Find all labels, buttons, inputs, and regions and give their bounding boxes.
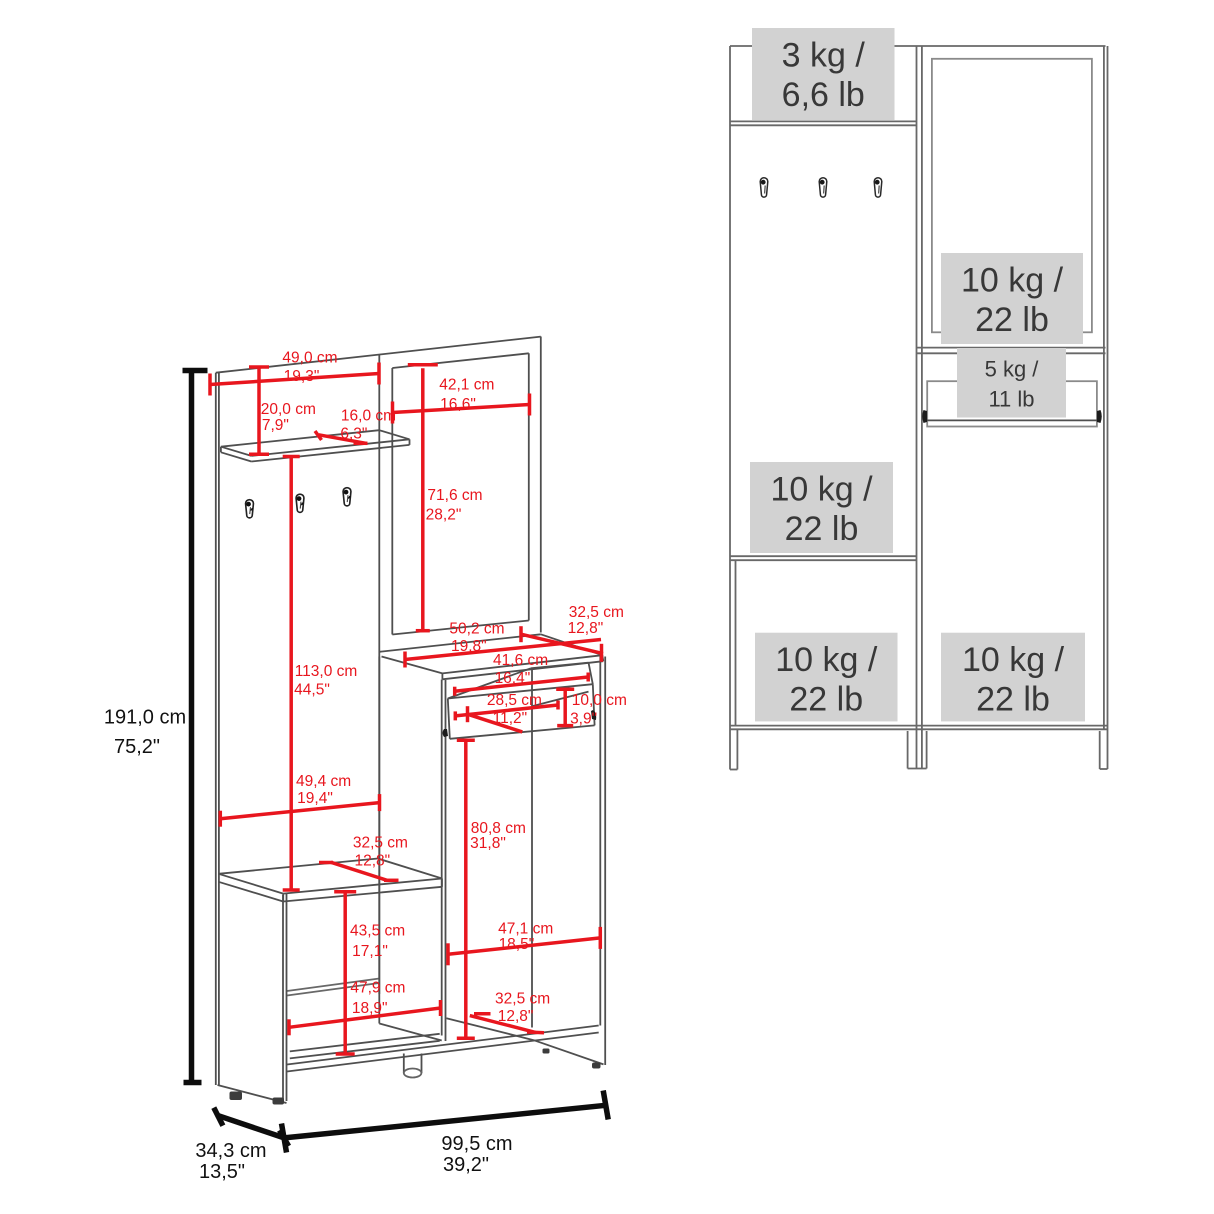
svg-text:191,0 cm: 191,0 cm	[104, 707, 186, 729]
svg-text:47,9 cm: 47,9 cm	[350, 979, 405, 996]
svg-text:19,3": 19,3"	[284, 368, 320, 385]
svg-text:5 kg /: 5 kg /	[985, 357, 1040, 382]
svg-text:42,1 cm: 42,1 cm	[439, 377, 494, 394]
svg-text:16,0 cm: 16,0 cm	[341, 408, 396, 425]
svg-text:28,5 cm: 28,5 cm	[487, 692, 542, 709]
svg-text:28,2": 28,2"	[426, 507, 462, 524]
svg-text:3,9": 3,9"	[570, 710, 597, 727]
svg-text:10,0 cm: 10,0 cm	[572, 692, 627, 709]
svg-text:12,8": 12,8"	[568, 620, 604, 637]
svg-text:22 lb: 22 lb	[976, 681, 1050, 719]
svg-text:12,8": 12,8"	[498, 1008, 534, 1025]
svg-text:10 kg /: 10 kg /	[770, 471, 873, 509]
svg-text:44,5": 44,5"	[294, 681, 330, 698]
svg-text:22 lb: 22 lb	[789, 681, 863, 719]
svg-text:17,1": 17,1"	[352, 943, 388, 960]
svg-text:19,8": 19,8"	[451, 638, 487, 655]
svg-text:41,6 cm: 41,6 cm	[493, 652, 548, 669]
svg-text:18,9": 18,9"	[352, 1000, 388, 1017]
svg-text:99,5 cm: 99,5 cm	[441, 1133, 512, 1155]
svg-text:16,6": 16,6"	[440, 396, 476, 413]
svg-text:32,5 cm: 32,5 cm	[353, 834, 408, 851]
svg-text:113,0 cm: 113,0 cm	[295, 663, 358, 680]
svg-text:19,4": 19,4"	[297, 790, 333, 807]
svg-text:20,0 cm: 20,0 cm	[261, 401, 316, 418]
svg-text:11 lb: 11 lb	[988, 387, 1034, 412]
svg-text:49,0 cm: 49,0 cm	[282, 350, 337, 367]
svg-text:22 lb: 22 lb	[785, 510, 859, 548]
svg-text:6,3": 6,3"	[340, 425, 367, 442]
svg-text:32,5 cm: 32,5 cm	[569, 604, 624, 621]
svg-text:39,2": 39,2"	[443, 1154, 489, 1176]
svg-text:71,6 cm: 71,6 cm	[427, 487, 482, 504]
svg-text:10 kg /: 10 kg /	[775, 641, 878, 679]
svg-text:22 lb: 22 lb	[975, 301, 1049, 339]
svg-text:3 kg /: 3 kg /	[782, 37, 866, 75]
svg-text:10 kg /: 10 kg /	[961, 262, 1064, 300]
svg-text:31,8": 31,8"	[470, 835, 506, 852]
svg-text:34,3 cm: 34,3 cm	[195, 1140, 266, 1162]
svg-text:75,2": 75,2"	[114, 736, 160, 758]
svg-text:13,5": 13,5"	[199, 1161, 245, 1183]
svg-text:16,4": 16,4"	[495, 670, 531, 687]
svg-text:7,9": 7,9"	[262, 417, 289, 434]
svg-text:10 kg /: 10 kg /	[962, 641, 1065, 679]
svg-text:43,5 cm: 43,5 cm	[350, 923, 405, 940]
svg-text:49,4 cm: 49,4 cm	[296, 773, 351, 790]
svg-text:12,8": 12,8"	[354, 852, 390, 869]
svg-text:6,6 lb: 6,6 lb	[782, 76, 865, 114]
svg-text:32,5 cm: 32,5 cm	[495, 990, 550, 1007]
svg-text:50,2 cm: 50,2 cm	[449, 620, 504, 637]
svg-text:18,5": 18,5"	[499, 936, 535, 953]
